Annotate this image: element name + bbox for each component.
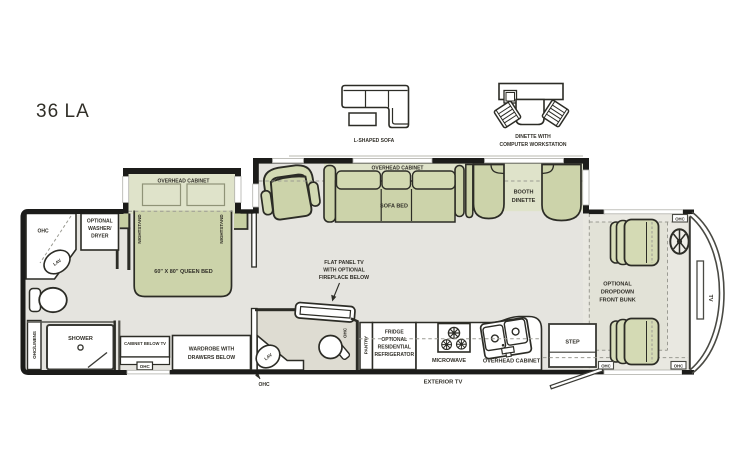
svg-text:FIREPLACE BELOW: FIREPLACE BELOW [319,275,369,281]
svg-text:DINETTE: DINETTE [512,198,536,204]
svg-text:FRONT BUNK: FRONT BUNK [599,298,635,304]
svg-text:OHC/LINENS: OHC/LINENS [32,331,37,359]
svg-text:CABINET BELOW TV: CABINET BELOW TV [124,341,166,346]
svg-text:60" X 80" QUEEN BED: 60" X 80" QUEEN BED [154,269,212,275]
svg-text:SOFA BED: SOFA BED [380,204,408,210]
svg-text:LA: LA [65,101,90,122]
svg-text:DROPDOWN: DROPDOWN [601,290,634,296]
svg-text:FRIDGE: FRIDGE [385,330,405,336]
svg-text:OHC: OHC [259,382,271,388]
svg-text:L-SHAPED SOFA: L-SHAPED SOFA [354,138,395,144]
svg-text:OHC: OHC [674,363,684,368]
svg-text:STEP: STEP [565,340,580,346]
svg-text:FLAT PANEL TV: FLAT PANEL TV [324,260,364,266]
svg-text:OPTIONAL: OPTIONAL [87,219,113,225]
svg-text:MICROWAVE: MICROWAVE [432,358,466,364]
svg-text:OHC: OHC [140,364,151,369]
svg-text:OPTIONAL: OPTIONAL [381,337,407,343]
svg-text:NIGHTSTAND: NIGHTSTAND [219,214,224,244]
svg-text:OPTIONAL: OPTIONAL [603,282,632,288]
svg-text:WITH OPTIONAL: WITH OPTIONAL [323,268,365,274]
svg-text:EXTERIOR TV: EXTERIOR TV [424,380,463,386]
svg-text:36: 36 [36,101,59,122]
svg-text:OHC: OHC [601,363,611,368]
svg-text:WARDROBE WITH: WARDROBE WITH [189,347,235,353]
svg-text:DRAWERS BELOW: DRAWERS BELOW [188,355,235,361]
svg-text:OHC: OHC [37,229,49,235]
svg-text:OVERHEAD CABINET: OVERHEAD CABINET [372,166,424,172]
svg-text:REFRIGERATOR: REFRIGERATOR [375,352,415,358]
svg-text:OVERHEAD CABINET: OVERHEAD CABINET [158,178,210,184]
svg-text:SHOWER: SHOWER [68,336,93,342]
svg-text:TV: TV [707,294,713,301]
svg-text:DRYER: DRYER [91,234,109,240]
svg-text:OVERHEAD CABINET: OVERHEAD CABINET [483,359,541,365]
svg-text:WASHER/: WASHER/ [88,226,112,232]
svg-text:RESIDENTIAL: RESIDENTIAL [378,345,411,351]
svg-text:OHC: OHC [675,216,685,221]
svg-text:OHC: OHC [343,327,348,338]
svg-text:COMPUTER WORKSTATION: COMPUTER WORKSTATION [499,142,566,148]
svg-text:DINETTE WITH: DINETTE WITH [515,134,551,140]
svg-text:NIGHTSTAND: NIGHTSTAND [137,214,142,244]
svg-text:BOOTH: BOOTH [514,190,534,196]
